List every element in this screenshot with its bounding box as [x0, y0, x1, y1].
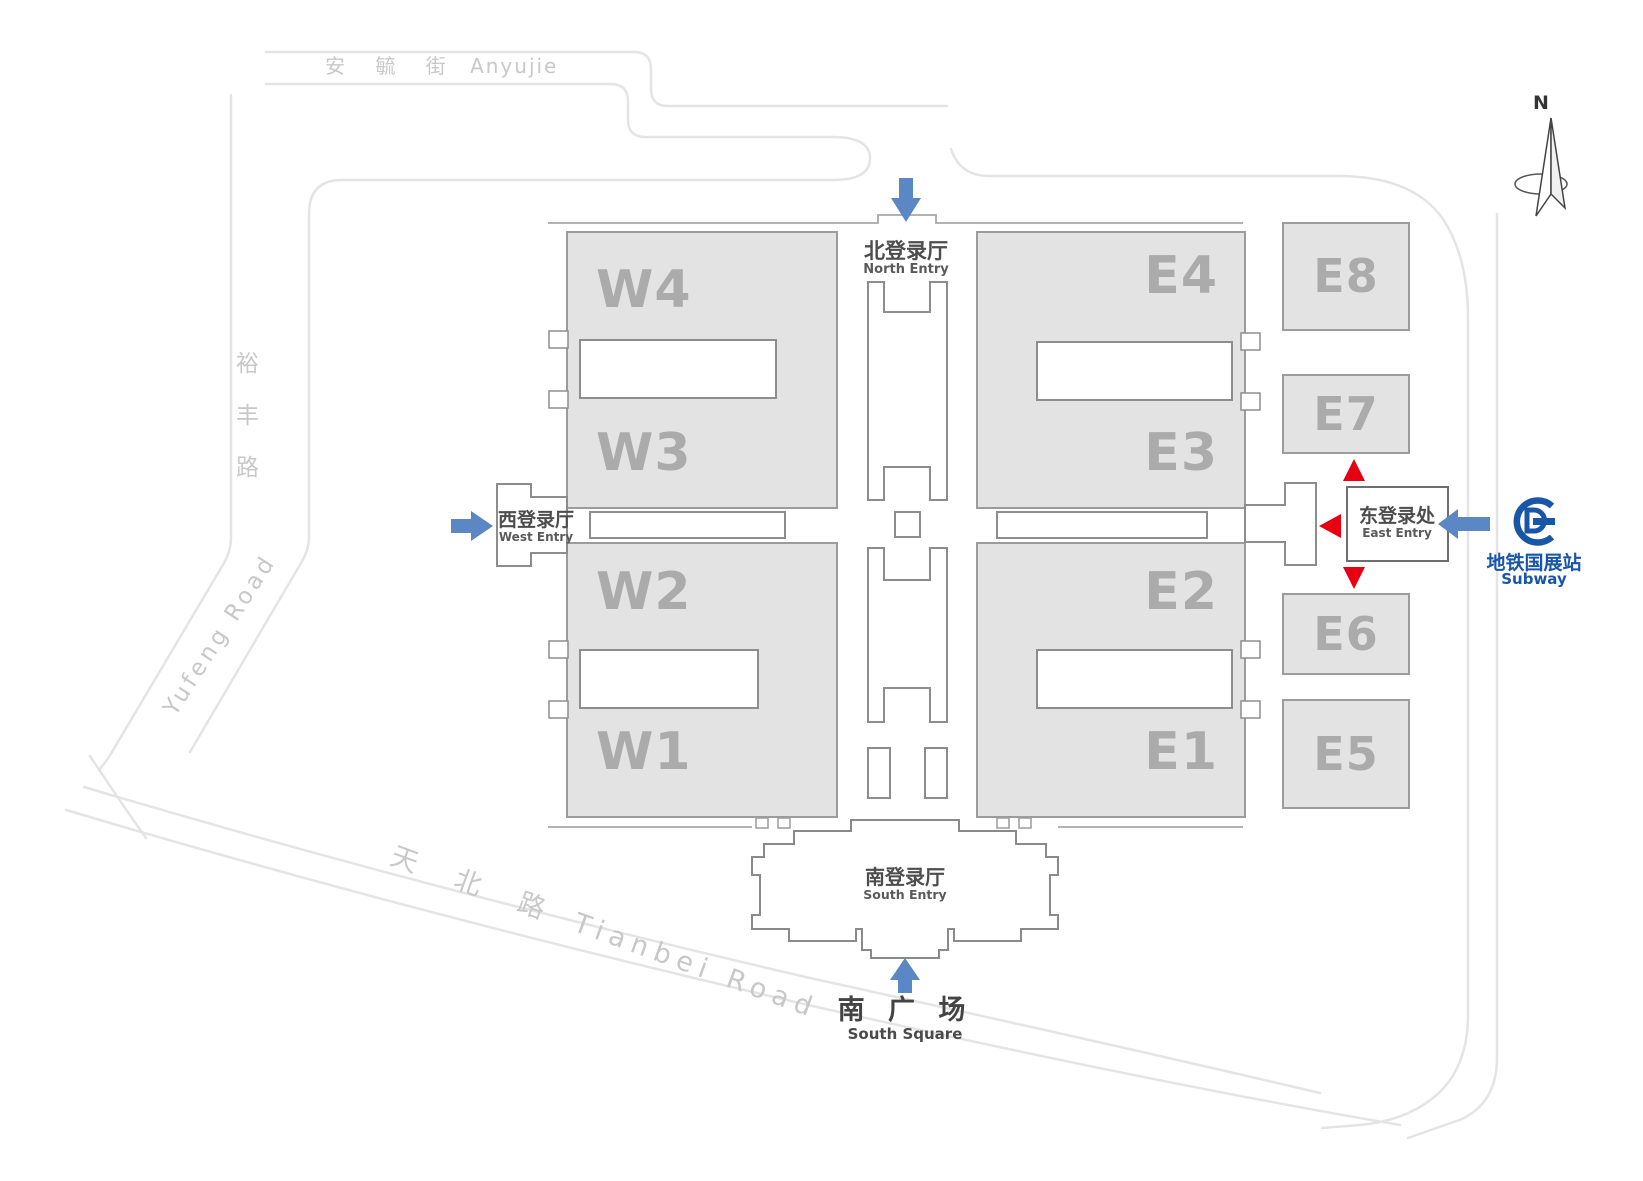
- compass-icon: [1515, 118, 1567, 216]
- slot-e4-e3: [1037, 342, 1232, 400]
- hall-label-e7: E7: [1283, 391, 1409, 437]
- cross-corridor-east: [997, 512, 1207, 538]
- hall-label-w4: W4: [596, 264, 692, 316]
- south-entry-arrow-icon: [890, 958, 920, 993]
- west-entry-label-cjk: 西登录厅: [476, 510, 596, 531]
- south-square-label-cjk: 南 广 场: [795, 996, 1015, 1026]
- hall-label-w3: W3: [596, 427, 692, 479]
- east-entry-label-en: East Entry: [1337, 527, 1457, 540]
- hall-label-e3: E3: [1050, 427, 1218, 479]
- hall-label-w2: W2: [596, 566, 692, 618]
- hall-label-e8: E8: [1283, 253, 1409, 299]
- slot-w4-w3: [580, 340, 776, 398]
- red-arrow-up-icon: [1343, 459, 1365, 481]
- south-square-label-en: South Square: [795, 1026, 1015, 1043]
- slot-w2-w1: [580, 650, 758, 708]
- road-label-anyujie: 安 毓 街 Anyujie: [325, 50, 558, 79]
- cross-corridor-west: [590, 512, 785, 538]
- corridor-stub-left: [868, 748, 890, 798]
- subway-logo-icon: [1517, 501, 1555, 543]
- south-entry-label-en: South Entry: [825, 888, 985, 902]
- hall-label-e5: E5: [1283, 731, 1409, 777]
- road-label-anyujie-en: Anyujie: [470, 54, 558, 78]
- corridor-south-bracket: [868, 548, 947, 722]
- road-tianbei-upper-line: [84, 787, 1320, 1093]
- boundary-top-line: [548, 215, 1243, 223]
- site-map: 安 毓 街 Anyujie 裕 丰 路 Yufeng Road 天 北 路 Ti…: [0, 0, 1643, 1181]
- road-label-anyujie-cjk: 安 毓 街: [325, 54, 458, 78]
- hall-label-e6: E6: [1283, 611, 1409, 657]
- slot-e2-e1: [1037, 650, 1232, 708]
- east-connector-pod-shape: [1245, 483, 1316, 565]
- north-entry-label-cjk: 北登录厅: [826, 240, 986, 263]
- corridor-stub-right: [925, 748, 947, 798]
- hall-label-e1: E1: [1050, 726, 1218, 778]
- corridor-center-square: [895, 512, 920, 537]
- hall-label-e2: E2: [1050, 566, 1218, 618]
- east-entry-label-cjk: 东登录处: [1337, 506, 1457, 527]
- road-east-outer-line: [1408, 214, 1497, 1138]
- west-entry-label-en: West Entry: [476, 531, 596, 544]
- road-label-yufeng-cjk: 裕 丰 路: [236, 338, 259, 494]
- south-entry-label-cjk: 南登录厅: [825, 866, 985, 888]
- corridor-north-bracket: [868, 282, 947, 500]
- red-arrow-down-icon: [1343, 567, 1365, 589]
- compass-north-label: N: [1526, 92, 1556, 114]
- north-entry-label-en: North Entry: [826, 263, 986, 277]
- subway-label: Subway: [1454, 570, 1614, 588]
- hall-label-e4: E4: [1050, 250, 1218, 302]
- hall-label-w1: W1: [596, 726, 692, 778]
